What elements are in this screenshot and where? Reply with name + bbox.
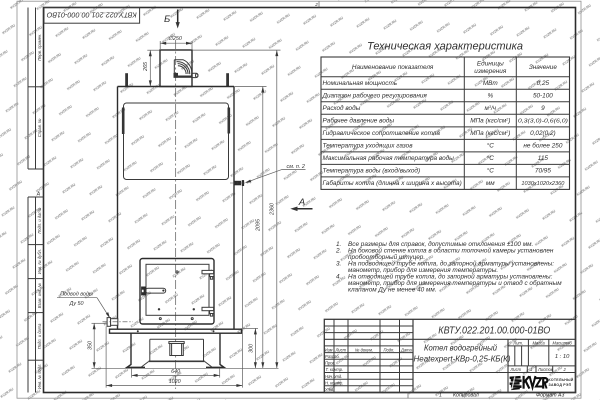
svg-text:Б: Б [164,14,170,25]
svg-text:Гидравлическое сопротивление к: Гидравлическое сопротивление котла [323,129,441,137]
svg-text:Инв. № подл.: Инв. № подл. [37,364,42,389]
svg-text:Подп. и дата: Подп. и дата [37,323,42,349]
svg-text:клапаном Ду не менее 40 мм.: клапаном Ду не менее 40 мм. [348,287,437,294]
svg-text:Расход воды: Расход воды [323,104,361,112]
svg-text:2.: 2. [335,248,341,255]
svg-text:Значение: Значение [529,64,557,71]
svg-text:Лист: Лист [510,367,522,372]
svg-text:Ду 50: Ду 50 [68,301,83,307]
svg-text:9: 9 [541,105,545,112]
svg-text:Heatexpert-КВр-0,25-КБ(К): Heatexpert-КВр-0,25-КБ(К) [414,354,511,363]
svg-text:МПа (кгс/см2): МПа (кгс/см2) [470,130,510,137]
svg-text:350: 350 [87,341,93,350]
svg-text:м3/ч: м3/ч [485,105,497,112]
svg-text:Подп.: Подп. [384,347,395,352]
svg-text:Лит.: Лит. [512,340,523,345]
svg-text:°С: °С [487,142,495,150]
svg-text:Котел водогрейный: Котел водогрейный [424,344,497,353]
svg-text:300: 300 [248,344,254,353]
svg-text:Т. контр.: Т. контр. [326,367,344,372]
svg-text:70/95: 70/95 [535,168,551,175]
svg-text:Единицы: Единицы [477,60,504,68]
svg-text:265: 265 [143,61,149,72]
svg-text:Диапазон рабочего регулировани: Диапазон рабочего регулирования [322,92,428,100]
svg-text:Подп. и дата: Подп. и дата [37,207,42,233]
svg-text:Взам. инв. №: Взам. инв. № [37,282,42,308]
svg-text:Пров.: Пров. [325,361,336,366]
svg-text:1: 1 [439,393,442,399]
svg-text:Нач.отд.: Нач.отд. [325,374,342,379]
svg-text:Подвод воды: Подвод воды [60,291,93,297]
svg-text:1020: 1020 [169,379,181,385]
svg-text:МПа (кгс/см2): МПа (кгс/см2) [470,118,510,125]
svg-text:Изм: Изм [325,347,333,352]
svg-text:°С: °С [487,167,495,175]
svg-text:КОТЕЛЬНЫЙ: КОТЕЛЬНЫЙ [549,378,574,382]
svg-text:Рабочее давление воды: Рабочее давление воды [323,117,395,125]
svg-text:Лист: Лист [335,347,347,352]
svg-text:Копировал: Копировал [453,393,479,399]
svg-text:Масштаб: Масштаб [553,340,573,345]
svg-text:0,02(0,2): 0,02(0,2) [530,130,556,137]
svg-text:Максимальная рабочая температу: Максимальная рабочая температура воды [323,154,455,162]
svg-text:Н. контр.: Н. контр. [325,380,343,385]
svg-text:А: А [36,192,41,198]
svg-text:1030х1020х2360: 1030х1020х2360 [521,181,565,187]
svg-text:640: 640 [171,369,180,375]
svg-text:Габариты котла (длинна х ширин: Габариты котла (длинна х ширина х высота… [323,179,462,187]
svg-text:Перв. примен.: Перв. примен. [37,34,42,61]
svg-text:1: 1 [530,367,532,372]
svg-text:Наименование показателя: Наименование показателя [352,64,434,71]
svg-text:Номинальная мощность: Номинальная мощность [323,80,398,87]
svg-text:мм: мм [486,180,495,187]
svg-text:МВт: МВт [483,80,499,87]
svg-text:Температура уходящих газов: Температура уходящих газов [323,142,414,150]
svg-text:Температура воды (вход/выход): Температура воды (вход/выход) [323,167,421,175]
svg-text:2: 2 [314,2,318,7]
svg-text:Техническая характеристика: Техническая характеристика [367,41,523,53]
svg-text:50-100: 50-100 [533,93,553,100]
svg-text:КВТУ.022.201.00.000-01ВО: КВТУ.022.201.00.000-01ВО [47,10,137,19]
svg-text:2095: 2095 [256,218,262,232]
svg-text:КВТУ.022.201.00.000-01ВО: КВТУ.022.201.00.000-01ВО [438,325,550,337]
svg-text:115: 115 [538,155,549,162]
svg-text:%: % [487,93,493,100]
svg-text:1 : 10: 1 : 10 [555,354,570,360]
svg-text:ЗАВОД РЭП: ЗАВОД РЭП [549,383,572,387]
svg-text:3.: 3. [336,261,341,268]
svg-text:∅250: ∅250 [168,36,182,42]
svg-text:не более 250: не более 250 [523,142,562,150]
svg-text:Утв.: Утв. [325,387,334,392]
svg-text:Листов: Листов [537,367,554,372]
svg-text:Формат А3: Формат А3 [536,393,564,399]
svg-text:Справ. №: Справ. № [37,118,42,137]
svg-text:Дата: Дата [400,347,413,352]
svg-text:0,25: 0,25 [537,80,550,87]
svg-text:Масса: Масса [533,340,546,345]
svg-text:4.: 4. [336,274,341,281]
svg-text:0,3(3,0)-0,6(6,0): 0,3(3,0)-0,6(6,0) [518,119,568,125]
svg-text:№ докум.: № докум. [355,347,373,352]
svg-text:Разраб.: Разраб. [325,354,340,359]
svg-text:°С: °С [487,154,495,162]
svg-text:см. п. 2: см. п. 2 [287,164,305,170]
svg-text:А: А [298,197,305,208]
svg-text:измерения: измерения [474,68,507,75]
svg-text:Инв. № дубл.: Инв. № дубл. [37,249,42,274]
svg-text:2360: 2360 [270,203,276,216]
